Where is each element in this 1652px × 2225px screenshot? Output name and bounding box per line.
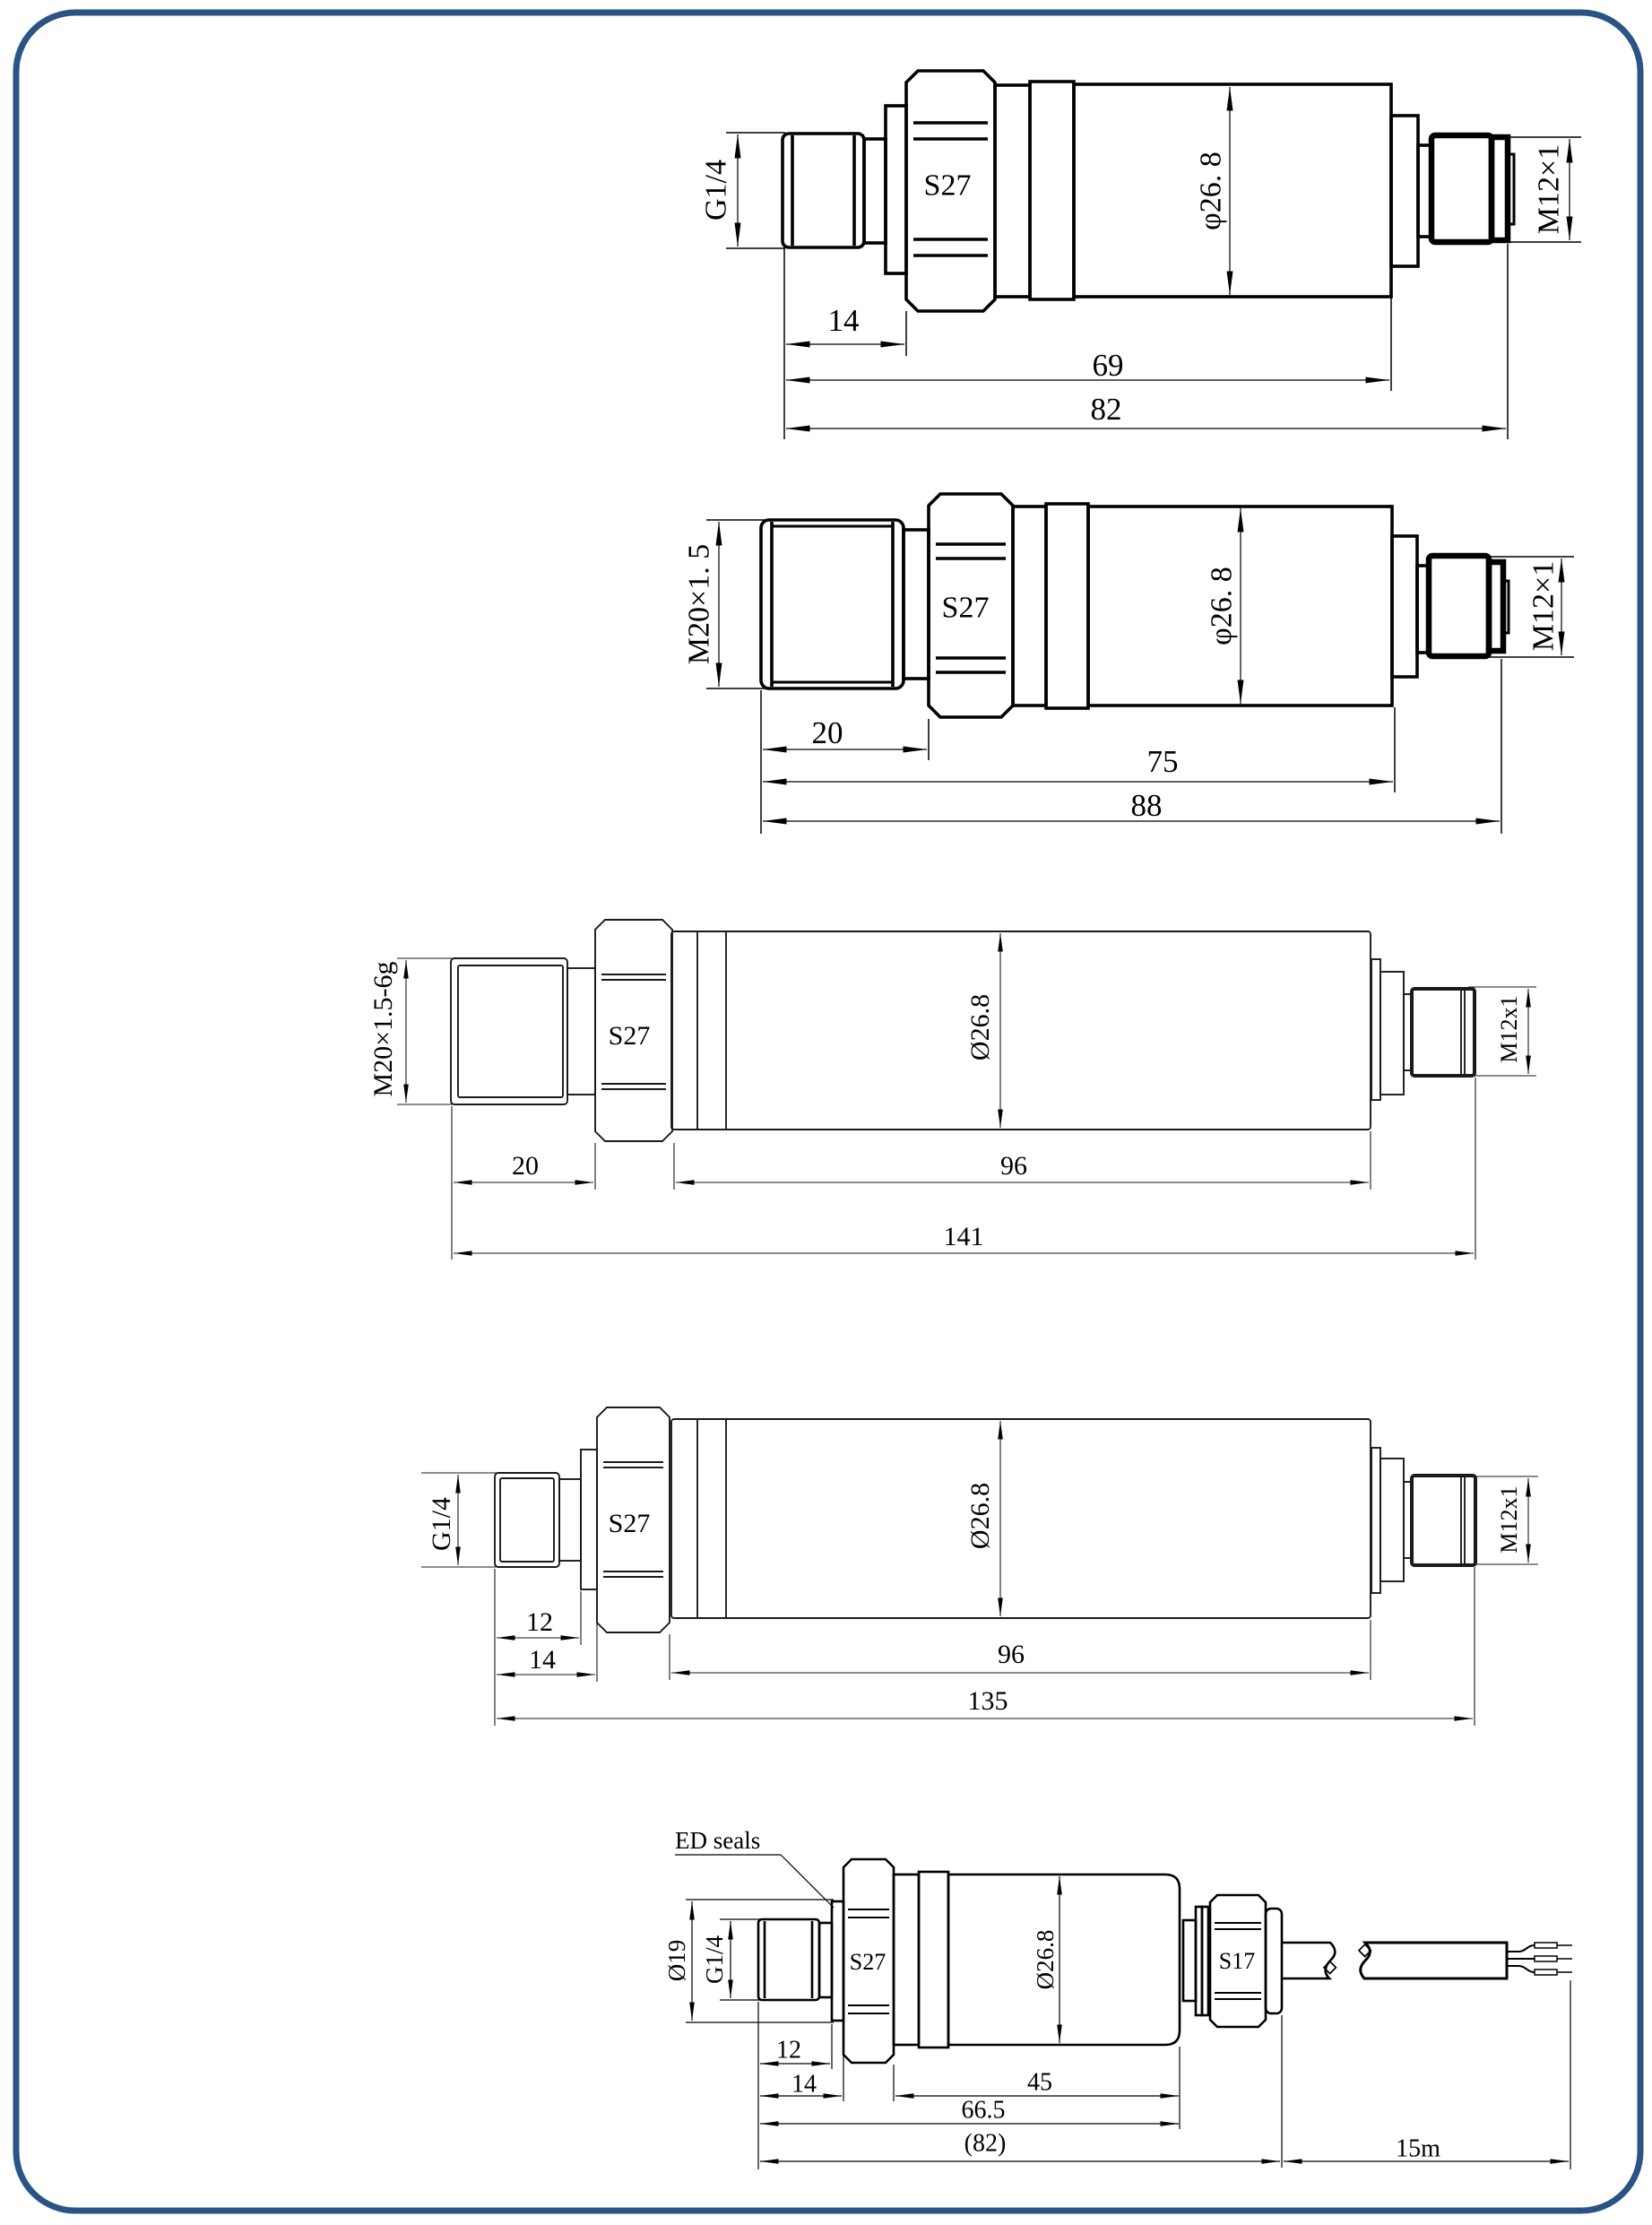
- svg-text:G1/4: G1/4: [427, 1497, 456, 1551]
- svg-text:75: 75: [1147, 744, 1179, 779]
- svg-text:14: 14: [791, 2071, 817, 2099]
- svg-text:14: 14: [529, 1645, 556, 1675]
- svg-text:G1/4: G1/4: [701, 1935, 728, 1985]
- svg-text:96: 96: [1000, 1151, 1027, 1181]
- svg-text:M12×1: M12×1: [1527, 561, 1561, 651]
- svg-text:66.5: 66.5: [962, 2097, 1006, 2125]
- svg-text:ED seals: ED seals: [675, 1827, 760, 1854]
- svg-text:S27: S27: [850, 1949, 886, 1975]
- svg-text:G1/4: G1/4: [700, 160, 733, 221]
- svg-text:20: 20: [812, 715, 843, 750]
- svg-text:Ø26.8: Ø26.8: [1032, 1930, 1059, 1990]
- svg-text:20: 20: [512, 1151, 539, 1181]
- svg-text:φ26. 8: φ26. 8: [1195, 152, 1228, 230]
- svg-text:82: 82: [1091, 392, 1122, 427]
- svg-text:Ø26.8: Ø26.8: [965, 1483, 995, 1549]
- svg-text:(82): (82): [964, 2130, 1007, 2158]
- svg-text:M12×1: M12×1: [1533, 144, 1566, 234]
- svg-text:M20×1. 5: M20×1. 5: [683, 544, 716, 664]
- svg-text:15m: 15m: [1396, 2135, 1440, 2163]
- svg-text:M20×1.5-6g: M20×1.5-6g: [368, 961, 398, 1096]
- svg-text:φ26. 8: φ26. 8: [1206, 567, 1239, 645]
- svg-text:135: 135: [968, 1686, 1008, 1716]
- svg-text:45: 45: [1027, 2069, 1052, 2097]
- svg-text:12: 12: [526, 1607, 553, 1637]
- svg-text:Ø19: Ø19: [663, 1940, 690, 1982]
- svg-text:96: 96: [998, 1640, 1025, 1669]
- svg-text:Ø26.8: Ø26.8: [965, 994, 995, 1061]
- svg-text:S17: S17: [1219, 1948, 1255, 1974]
- svg-text:14: 14: [828, 303, 860, 338]
- svg-text:M12x1: M12x1: [1496, 1485, 1522, 1553]
- svg-text:S27: S27: [942, 592, 990, 625]
- svg-text:88: 88: [1131, 788, 1163, 823]
- svg-text:141: 141: [944, 1222, 984, 1251]
- svg-text:69: 69: [1093, 348, 1124, 383]
- svg-text:M12x1: M12x1: [1496, 995, 1522, 1062]
- svg-text:S27: S27: [924, 169, 972, 203]
- svg-text:S27: S27: [609, 1021, 651, 1051]
- svg-text:12: 12: [776, 2037, 801, 2065]
- svg-text:S27: S27: [609, 1509, 651, 1538]
